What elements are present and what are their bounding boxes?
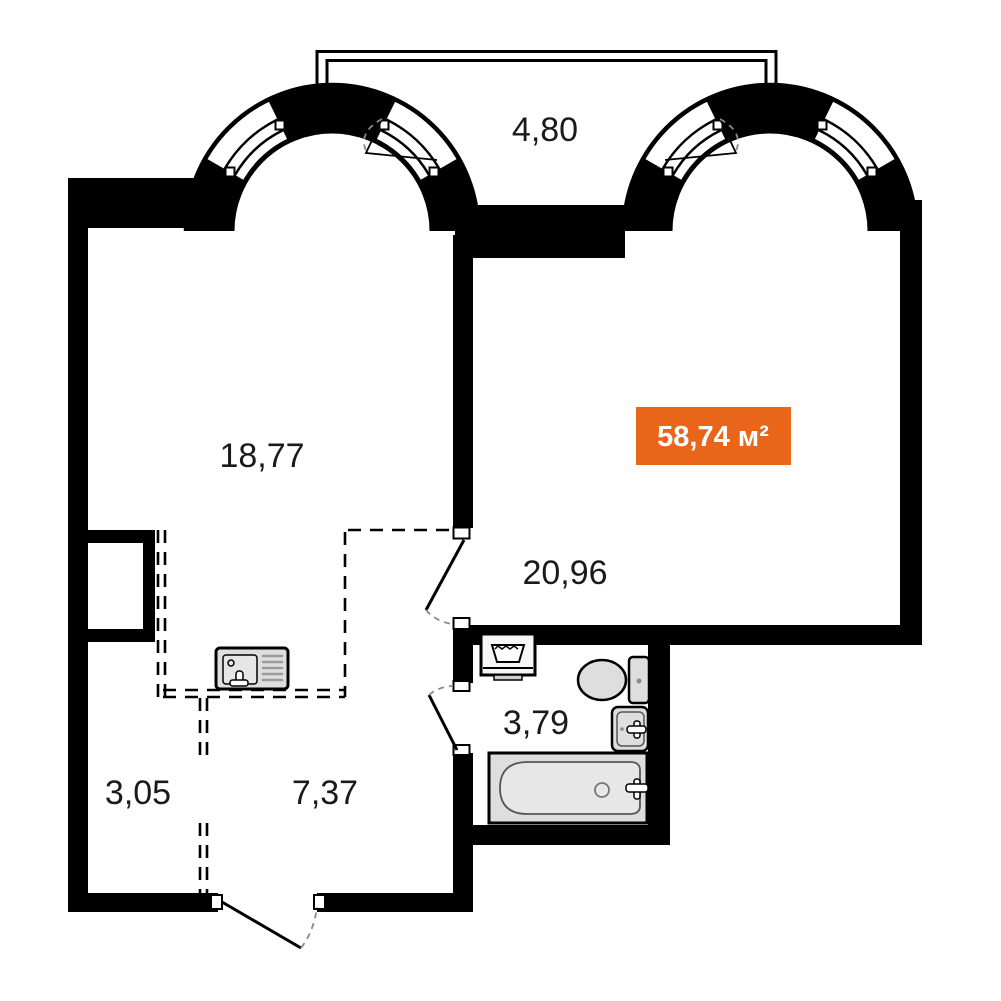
floor-plan: 4,80 18,77 20,96 3,79 3,05 7,37 58,74 м² [0,0,1001,1001]
hall-right-area-label: 7,37 [292,774,358,812]
balcony-area-label: 4,80 [512,111,578,149]
door-bathroom [429,681,470,755]
total-area-badge: 58,74 м² [636,407,791,465]
toilet-icon [578,657,649,703]
bathtub-icon [489,753,648,823]
hall-left-area-label: 3,05 [105,774,171,812]
room-left-area-label: 18,77 [219,437,304,475]
kitchen-zone-dashed-partitions [158,530,453,893]
bathroom-area-label: 3,79 [503,704,569,742]
washing-machine-icon [481,634,535,680]
room-right-area-label: 20,96 [522,554,607,592]
balcony-outline [317,52,776,89]
door-living [426,528,470,630]
door-entrance [211,895,325,948]
total-area-label: 58,74 м² [657,421,769,453]
kitchen-sink-icon [216,648,288,689]
washbasin-icon [612,707,648,751]
